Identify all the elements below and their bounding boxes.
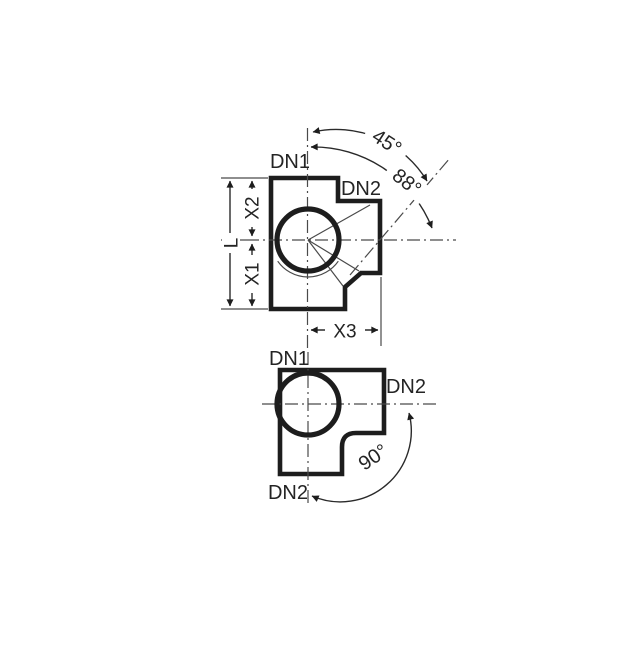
- label-dn1-top: DN1: [270, 151, 310, 173]
- angle-label-45-group: 45°: [361, 121, 412, 165]
- label-dn2-right: DN2: [386, 376, 426, 398]
- dim-label-x2: X2: [242, 196, 263, 219]
- label-dn2-top: DN2: [341, 178, 381, 200]
- dim-label-L-group: L: [221, 233, 242, 253]
- angle-label-90-group: 90°: [348, 436, 398, 480]
- dim-label-x3: X3: [333, 321, 356, 342]
- pipe-fitting-diagram: DN1 DN2 L X2 X1 X3 45°: [0, 0, 640, 640]
- dim-label-x2-group: X2: [242, 189, 263, 227]
- dim-label-x1: X1: [242, 262, 263, 285]
- dim-label-x1-group: X1: [242, 255, 263, 293]
- angle-label-88-group: 88°: [382, 160, 432, 206]
- figure-bottom-90-bend: DN1 DN2 DN2 90°: [262, 348, 438, 507]
- dim-label-L: L: [221, 238, 242, 249]
- figure-top-angled-fitting: DN1 DN2 L X2 X1 X3 45°: [221, 121, 456, 351]
- technical-drawing-page: DN1 DN2 L X2 X1 X3 45°: [0, 0, 640, 640]
- label-dn2-bottom: DN2: [268, 482, 308, 504]
- dim-label-x3-group: X3: [325, 321, 365, 342]
- label-dn1-bottom-fig: DN1: [269, 348, 309, 370]
